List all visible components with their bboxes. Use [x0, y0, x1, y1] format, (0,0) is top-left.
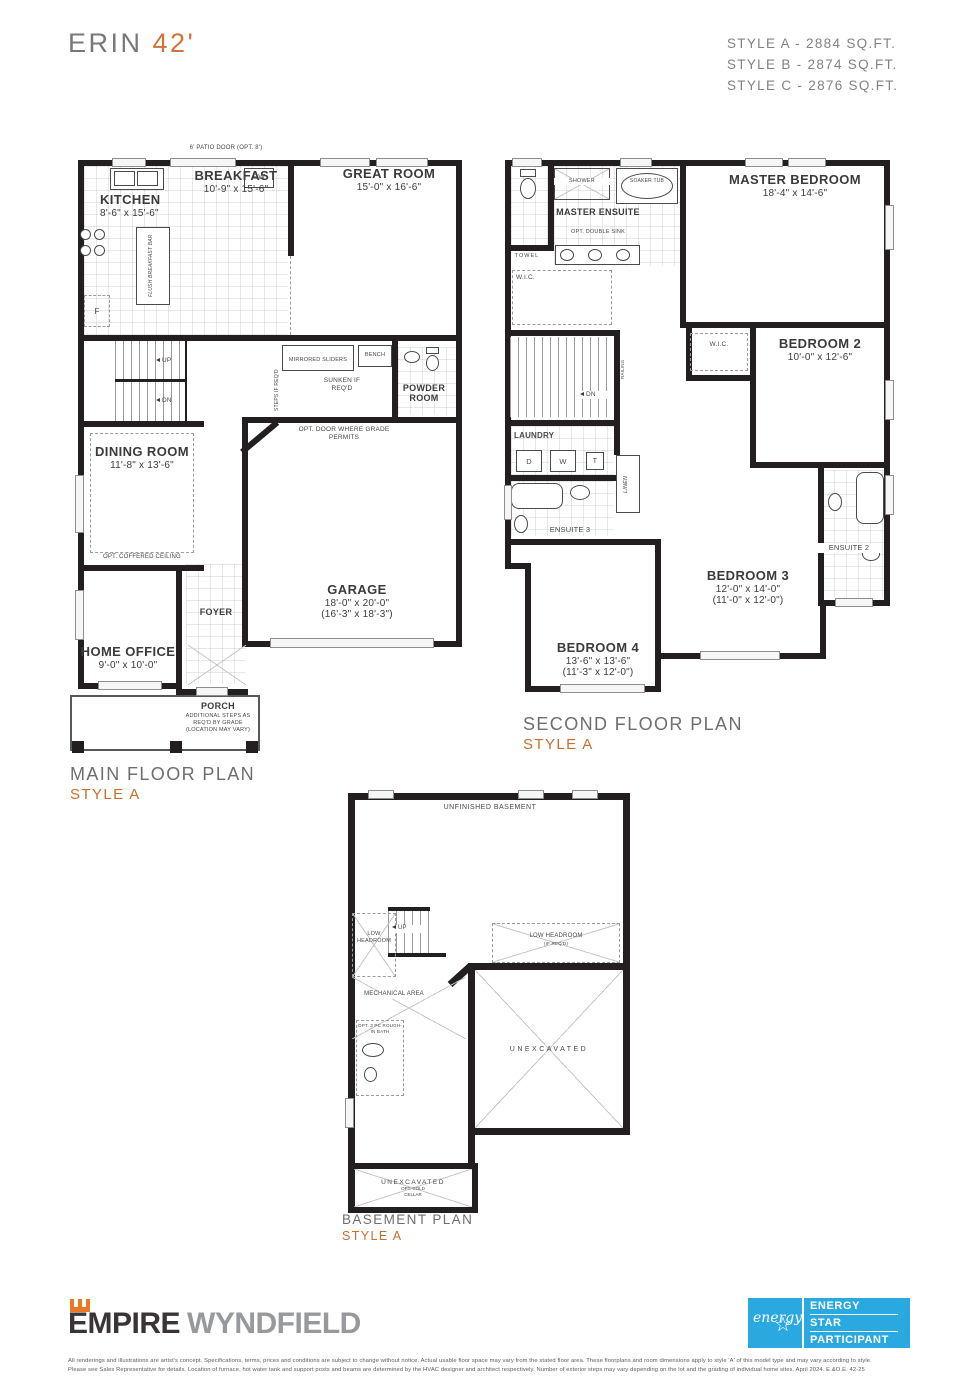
wall [78, 565, 204, 571]
wall [505, 420, 620, 426]
dn-label: DN [156, 397, 186, 405]
window [518, 790, 544, 799]
unexcavated-area: UNEXCAVATED [468, 963, 630, 1135]
soaker-tub-label: SOAKER TUB [628, 178, 666, 185]
window [560, 684, 645, 693]
wall [505, 245, 554, 251]
garage-label: GARAGE [282, 583, 432, 598]
dining-room-dims: 11'-8" x 13'-6" [90, 460, 194, 471]
window [112, 158, 146, 167]
wall [468, 1135, 475, 1163]
garage-dims: 18'-0" x 20'-0" [282, 598, 432, 609]
stair-wall [185, 341, 187, 421]
window [745, 158, 783, 167]
wic2-label: W.I.C. [692, 341, 746, 349]
walk-in-closet-2 [690, 333, 748, 371]
porch-post [246, 741, 258, 753]
style-c-sqft: STYLE C - 2876 SQ.FT. [727, 76, 898, 97]
bathtub-icon [362, 1043, 384, 1057]
bedroom4-dims2: (11'-3" x 12'-0") [533, 667, 663, 678]
second-floor-style-label: STYLE A [523, 736, 594, 753]
toilet-icon [426, 355, 439, 371]
second-floor-plan-label: SECOND FLOOR PLAN [523, 714, 743, 735]
bedroom3-label: BEDROOM 3 [678, 569, 818, 584]
wall [505, 475, 620, 481]
cooktop-burner-icon [80, 229, 91, 240]
arrow-left-icon [392, 925, 396, 929]
laundry-tub-label: T [586, 457, 604, 466]
wall [680, 160, 686, 328]
ensuite-note: OPT. DOUBLE SINK [548, 229, 648, 236]
sink-icon [560, 249, 574, 261]
opt-bath-label: OPT. 3 PC ROUGH-IN BATH [358, 1023, 402, 1035]
low-headroom-label-2: LOW HEADROOM (IF REQ'D) [502, 933, 610, 947]
dining-room-label: DINING ROOM [90, 445, 194, 460]
toilet-icon [520, 178, 536, 199]
cooktop-burner-icon [94, 229, 105, 240]
toilet-icon [520, 169, 536, 177]
island-label: FLUSH BREAKFAST BAR [148, 233, 155, 299]
porch-label: PORCH [170, 701, 266, 711]
bedroom2-dims: 10'-0" x 12'-6" [758, 352, 882, 363]
arrow-left-icon [156, 358, 160, 362]
foyer-steps [188, 645, 246, 685]
bathtub-icon [511, 483, 563, 509]
star-word: STAR [810, 1315, 898, 1331]
sink-icon [616, 249, 630, 261]
cooktop-burner-icon [80, 245, 91, 256]
opt-door-note: OPT. DOOR WHERE GRADE PERMITS [292, 426, 396, 443]
basement-plan: UNEXCAVATED UNEXCAVATED OPT. COLD CELLAR… [340, 785, 640, 1235]
window [885, 205, 894, 250]
washer-label: W [550, 457, 576, 467]
wall [78, 421, 204, 427]
window [75, 590, 84, 640]
laundry-label: LAUNDRY [514, 431, 574, 441]
soaker-tub-icon [621, 173, 673, 199]
home-office-label: HOME OFFICE [78, 645, 178, 660]
sunken-note: SUNKEN IF REQ'D [316, 377, 368, 394]
window [620, 158, 652, 167]
energy-star-badge: energy ☆ ENERGY STAR PARTICIPANT [748, 1298, 910, 1348]
window [788, 158, 826, 167]
main-floor-plan: DW F FLUSH BREAKFAST BAR MIRRORED SLIDER… [70, 145, 472, 770]
master-bedroom-dims: 18'-4" x 14'-6" [715, 188, 875, 199]
toilet-icon [514, 515, 528, 533]
bench-label: BENCH [358, 352, 392, 359]
kitchen-dims: 8'-6" x 15'-6" [100, 208, 200, 219]
porch-note: ADDITIONAL STEPS AS REQ'D BY GRADE (LOCA… [178, 713, 258, 734]
wic-label: W.I.C. [516, 274, 556, 282]
ensuite3-label: ENSUITE 3 [530, 525, 610, 535]
basement-plan-label: BASEMENT PLAN [342, 1212, 473, 1227]
sink-icon [404, 351, 420, 363]
window [368, 790, 394, 799]
arrow-left-icon [580, 392, 584, 396]
main-floor-plan-label: MAIN FLOOR PLAN [70, 764, 255, 785]
unexcavated-bottom-label: UNEXCAVATED [381, 1179, 445, 1186]
toilet-icon [828, 493, 842, 511]
model-size: 42' [153, 28, 196, 58]
room-divider-dashed [290, 256, 291, 335]
great-room-label: GREAT ROOM [322, 167, 456, 182]
coffered-note: OPT. COFFERED CEILING [92, 554, 192, 562]
window [512, 158, 542, 167]
home-office-dims: 9'-0" x 10'-0" [78, 660, 178, 671]
porch-post [72, 741, 84, 753]
powder-room-label: POWDER ROOM [394, 383, 454, 403]
legal-line-1: All renderings and illustrations are art… [68, 1357, 872, 1366]
brand-wyndfield: WYNDFIELD [187, 1307, 361, 1340]
sink-icon [588, 249, 602, 261]
wall [686, 375, 750, 381]
garage-dims2: (16'-3" x 18'-3") [282, 609, 432, 620]
style-list: STYLE A - 2884 SQ.FT. STYLE B - 2874 SQ.… [727, 34, 898, 97]
sink-icon [570, 485, 590, 500]
wall [818, 468, 824, 606]
stair-rail [115, 379, 185, 382]
front-door [196, 687, 228, 696]
wall [750, 322, 756, 468]
window [700, 651, 780, 660]
stair-wall [388, 953, 446, 957]
stairs [510, 337, 610, 417]
up-label: UP [156, 357, 186, 365]
master-ensuite-label: MASTER ENSUITE [548, 207, 648, 217]
brand-empire: EMPIRE [68, 1307, 180, 1340]
patio-door-label: 6' PATIO DOOR (OPT. 8') [166, 145, 286, 153]
wall [680, 322, 890, 328]
cold-cellar-area: UNEXCAVATED OPT. COLD CELLAR [348, 1163, 478, 1213]
energy-star-text: ENERGY STAR PARTICIPANT [804, 1298, 910, 1348]
participant-word: PARTICIPANT [810, 1332, 898, 1348]
great-room-dims: 15'-0" x 16'-6" [322, 182, 456, 193]
dn-label: DN [580, 391, 614, 399]
energy-star-icon: ☆ [774, 1315, 792, 1335]
kitchen-sink-icon [137, 171, 158, 186]
style-b-sqft: STYLE B - 2874 SQ.FT. [727, 55, 898, 76]
wall [456, 160, 462, 647]
railing-label: RAILING [620, 347, 626, 391]
porch-post [170, 741, 182, 753]
towel-label: TOWEL [506, 253, 548, 260]
toilet-icon [426, 347, 439, 354]
wall [505, 539, 661, 545]
low-headroom-label: LOW HEADROOM [350, 931, 398, 945]
bedroom4-dims: 13'-6" x 13'-6" [533, 656, 663, 667]
patio-door [170, 158, 236, 167]
energy-star-logo: energy ☆ [748, 1298, 804, 1348]
window [572, 790, 598, 799]
wall [525, 563, 531, 692]
arrow-left-icon [156, 398, 160, 402]
bedroom4-label: BEDROOM 4 [533, 641, 663, 656]
second-floor-plan: SHOWER SOAKER TUB MASTER ENSUITE OPT. DO… [500, 145, 900, 760]
shower-label: SHOWER [554, 178, 610, 185]
bedroom3-dims2: (11'-0" x 12'-0") [678, 595, 818, 606]
ensuite2-label: ENSUITE 2 [818, 543, 880, 553]
window [835, 598, 873, 607]
cold-cellar-note: OPT. COLD CELLAR [395, 1186, 431, 1198]
fridge-label: F [84, 307, 110, 317]
steps-note: STEPS IF REQ'D [274, 367, 281, 413]
toilet-icon [364, 1067, 377, 1082]
wall [392, 341, 398, 421]
bedroom3-dims: 12'-0" x 14'-0" [678, 584, 818, 595]
energy-word: ENERGY [810, 1298, 898, 1314]
brand-logo: EMPIREWYNDFIELD [68, 1307, 361, 1341]
master-bedroom-label: MASTER BEDROOM [715, 173, 875, 188]
linen-label: LINEN [623, 461, 630, 507]
foyer-label: FOYER [186, 607, 246, 617]
window [885, 380, 894, 420]
wall [820, 600, 826, 659]
model-name: ERIN [68, 28, 143, 58]
main-floor-style-label: STYLE A [70, 786, 141, 803]
sliders-label: MIRRORED SLIDERS [283, 357, 353, 364]
window [98, 681, 162, 690]
window [75, 475, 84, 533]
mechanical-label: MECHANICAL AREA [362, 991, 426, 999]
bedroom2-label: BEDROOM 2 [758, 337, 882, 352]
unfinished-basement-label: UNFINISHED BASEMENT [435, 803, 545, 812]
window [504, 485, 512, 520]
cooktop-burner-icon [94, 245, 105, 256]
unexcavated-label: UNEXCAVATED [510, 1046, 588, 1053]
dryer-label: D [516, 457, 542, 467]
kitchen-label: KITCHEN [100, 193, 200, 208]
legal-line-2: Please see Sales Representative for deta… [68, 1366, 872, 1375]
window [345, 1098, 354, 1128]
kitchen-sink-icon [114, 171, 135, 186]
bathtub-icon [856, 472, 884, 524]
window [885, 475, 894, 515]
garage-door [270, 638, 434, 648]
breakfast-label: BREAKFAST [180, 169, 292, 184]
style-a-sqft: STYLE A - 2884 SQ.FT. [727, 34, 898, 55]
page-title: ERIN 42' [68, 28, 195, 59]
legal-text: All renderings and illustrations are art… [68, 1357, 872, 1374]
basement-style-label: STYLE A [342, 1229, 403, 1243]
wall [505, 330, 620, 336]
wall [505, 160, 890, 166]
